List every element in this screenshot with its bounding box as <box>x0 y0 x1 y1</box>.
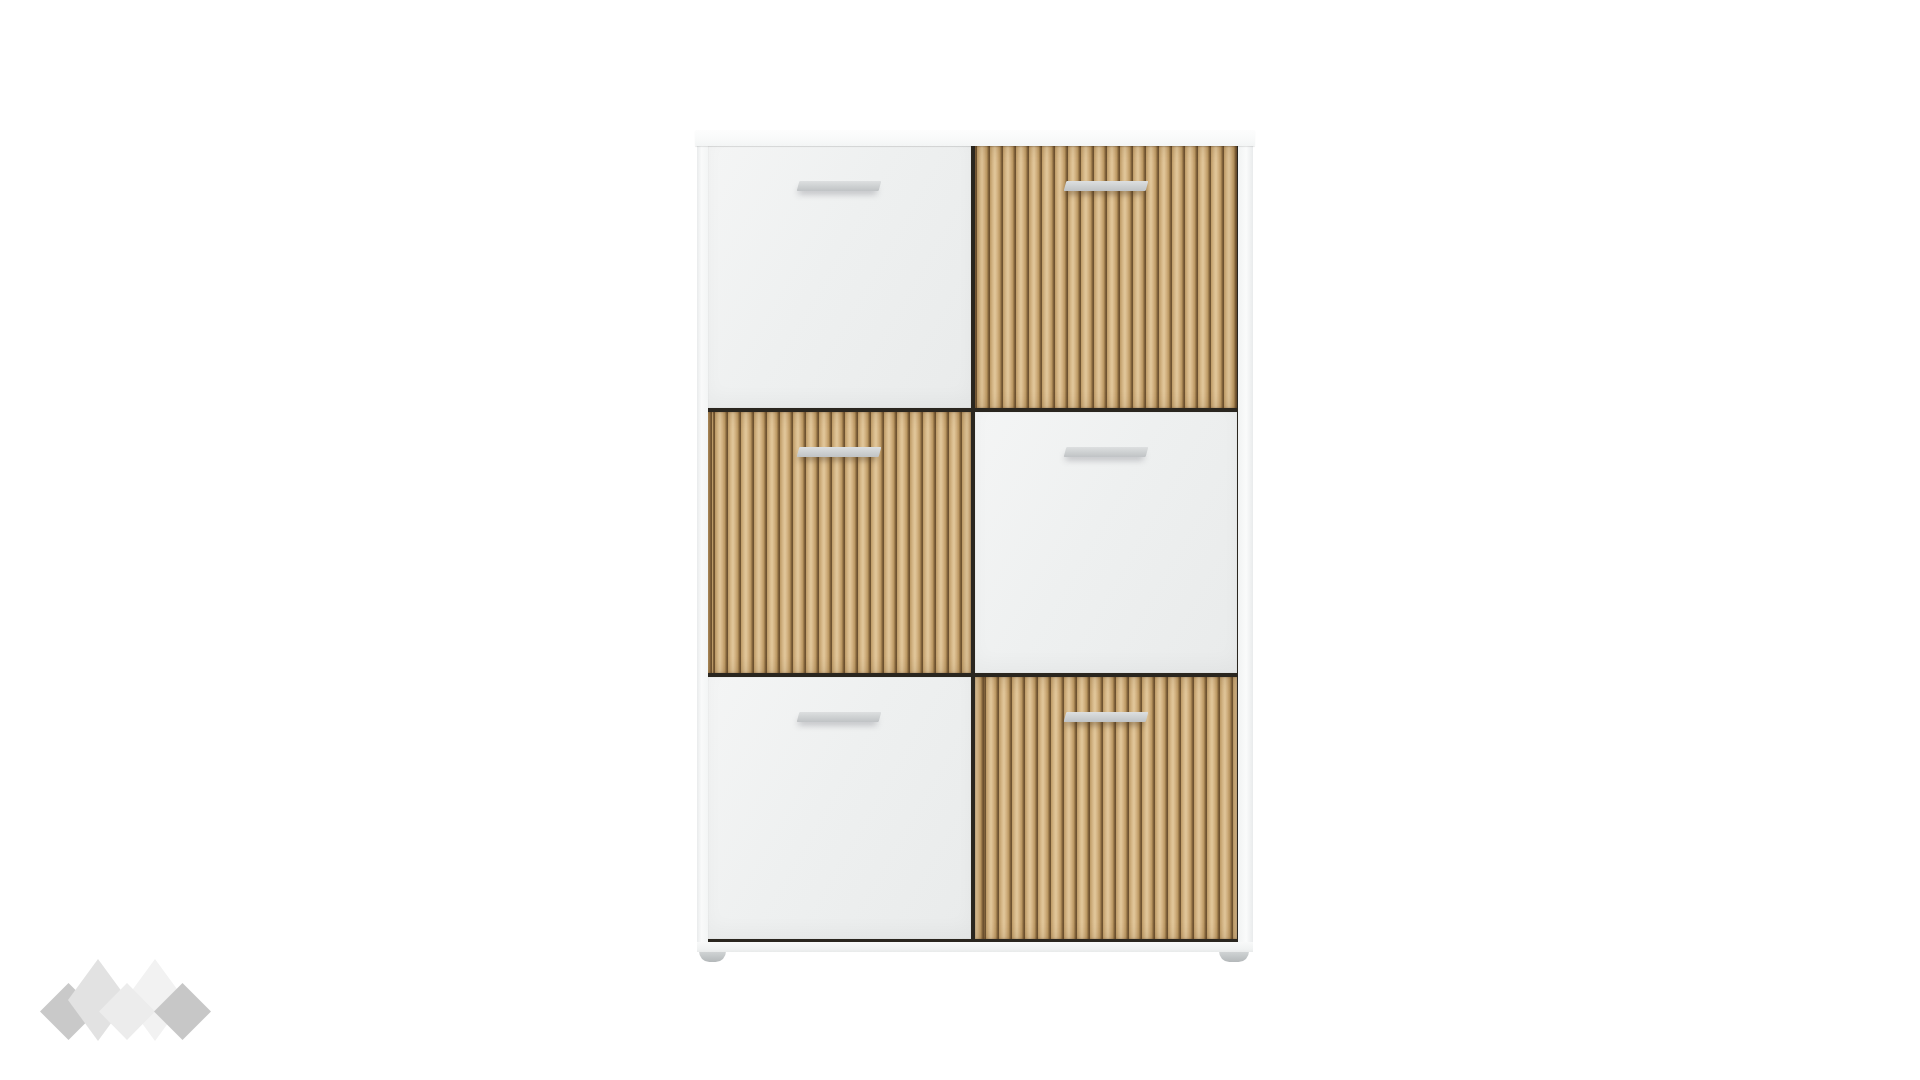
brand-watermark <box>0 0 260 120</box>
door-handle <box>1063 712 1148 722</box>
door-handle <box>1063 181 1148 191</box>
door-top-left <box>708 146 971 408</box>
cabinet-doors-grid <box>705 143 1240 942</box>
cabinet-left-side-panel <box>697 144 708 952</box>
door-bottom-left <box>708 677 971 939</box>
door-handle <box>1063 447 1148 457</box>
door-handle <box>797 181 882 191</box>
cabinet-top-panel <box>695 130 1255 146</box>
door-handle <box>797 712 882 722</box>
door-handle <box>797 447 882 457</box>
door-top-right <box>975 146 1238 408</box>
door-middle-left <box>708 412 971 674</box>
cabinet-bottom-panel <box>697 942 1253 952</box>
cabinet <box>695 130 1255 962</box>
door-bottom-right <box>975 677 1238 939</box>
cabinet-right-side-panel <box>1238 144 1253 952</box>
door-middle-right <box>975 412 1238 674</box>
